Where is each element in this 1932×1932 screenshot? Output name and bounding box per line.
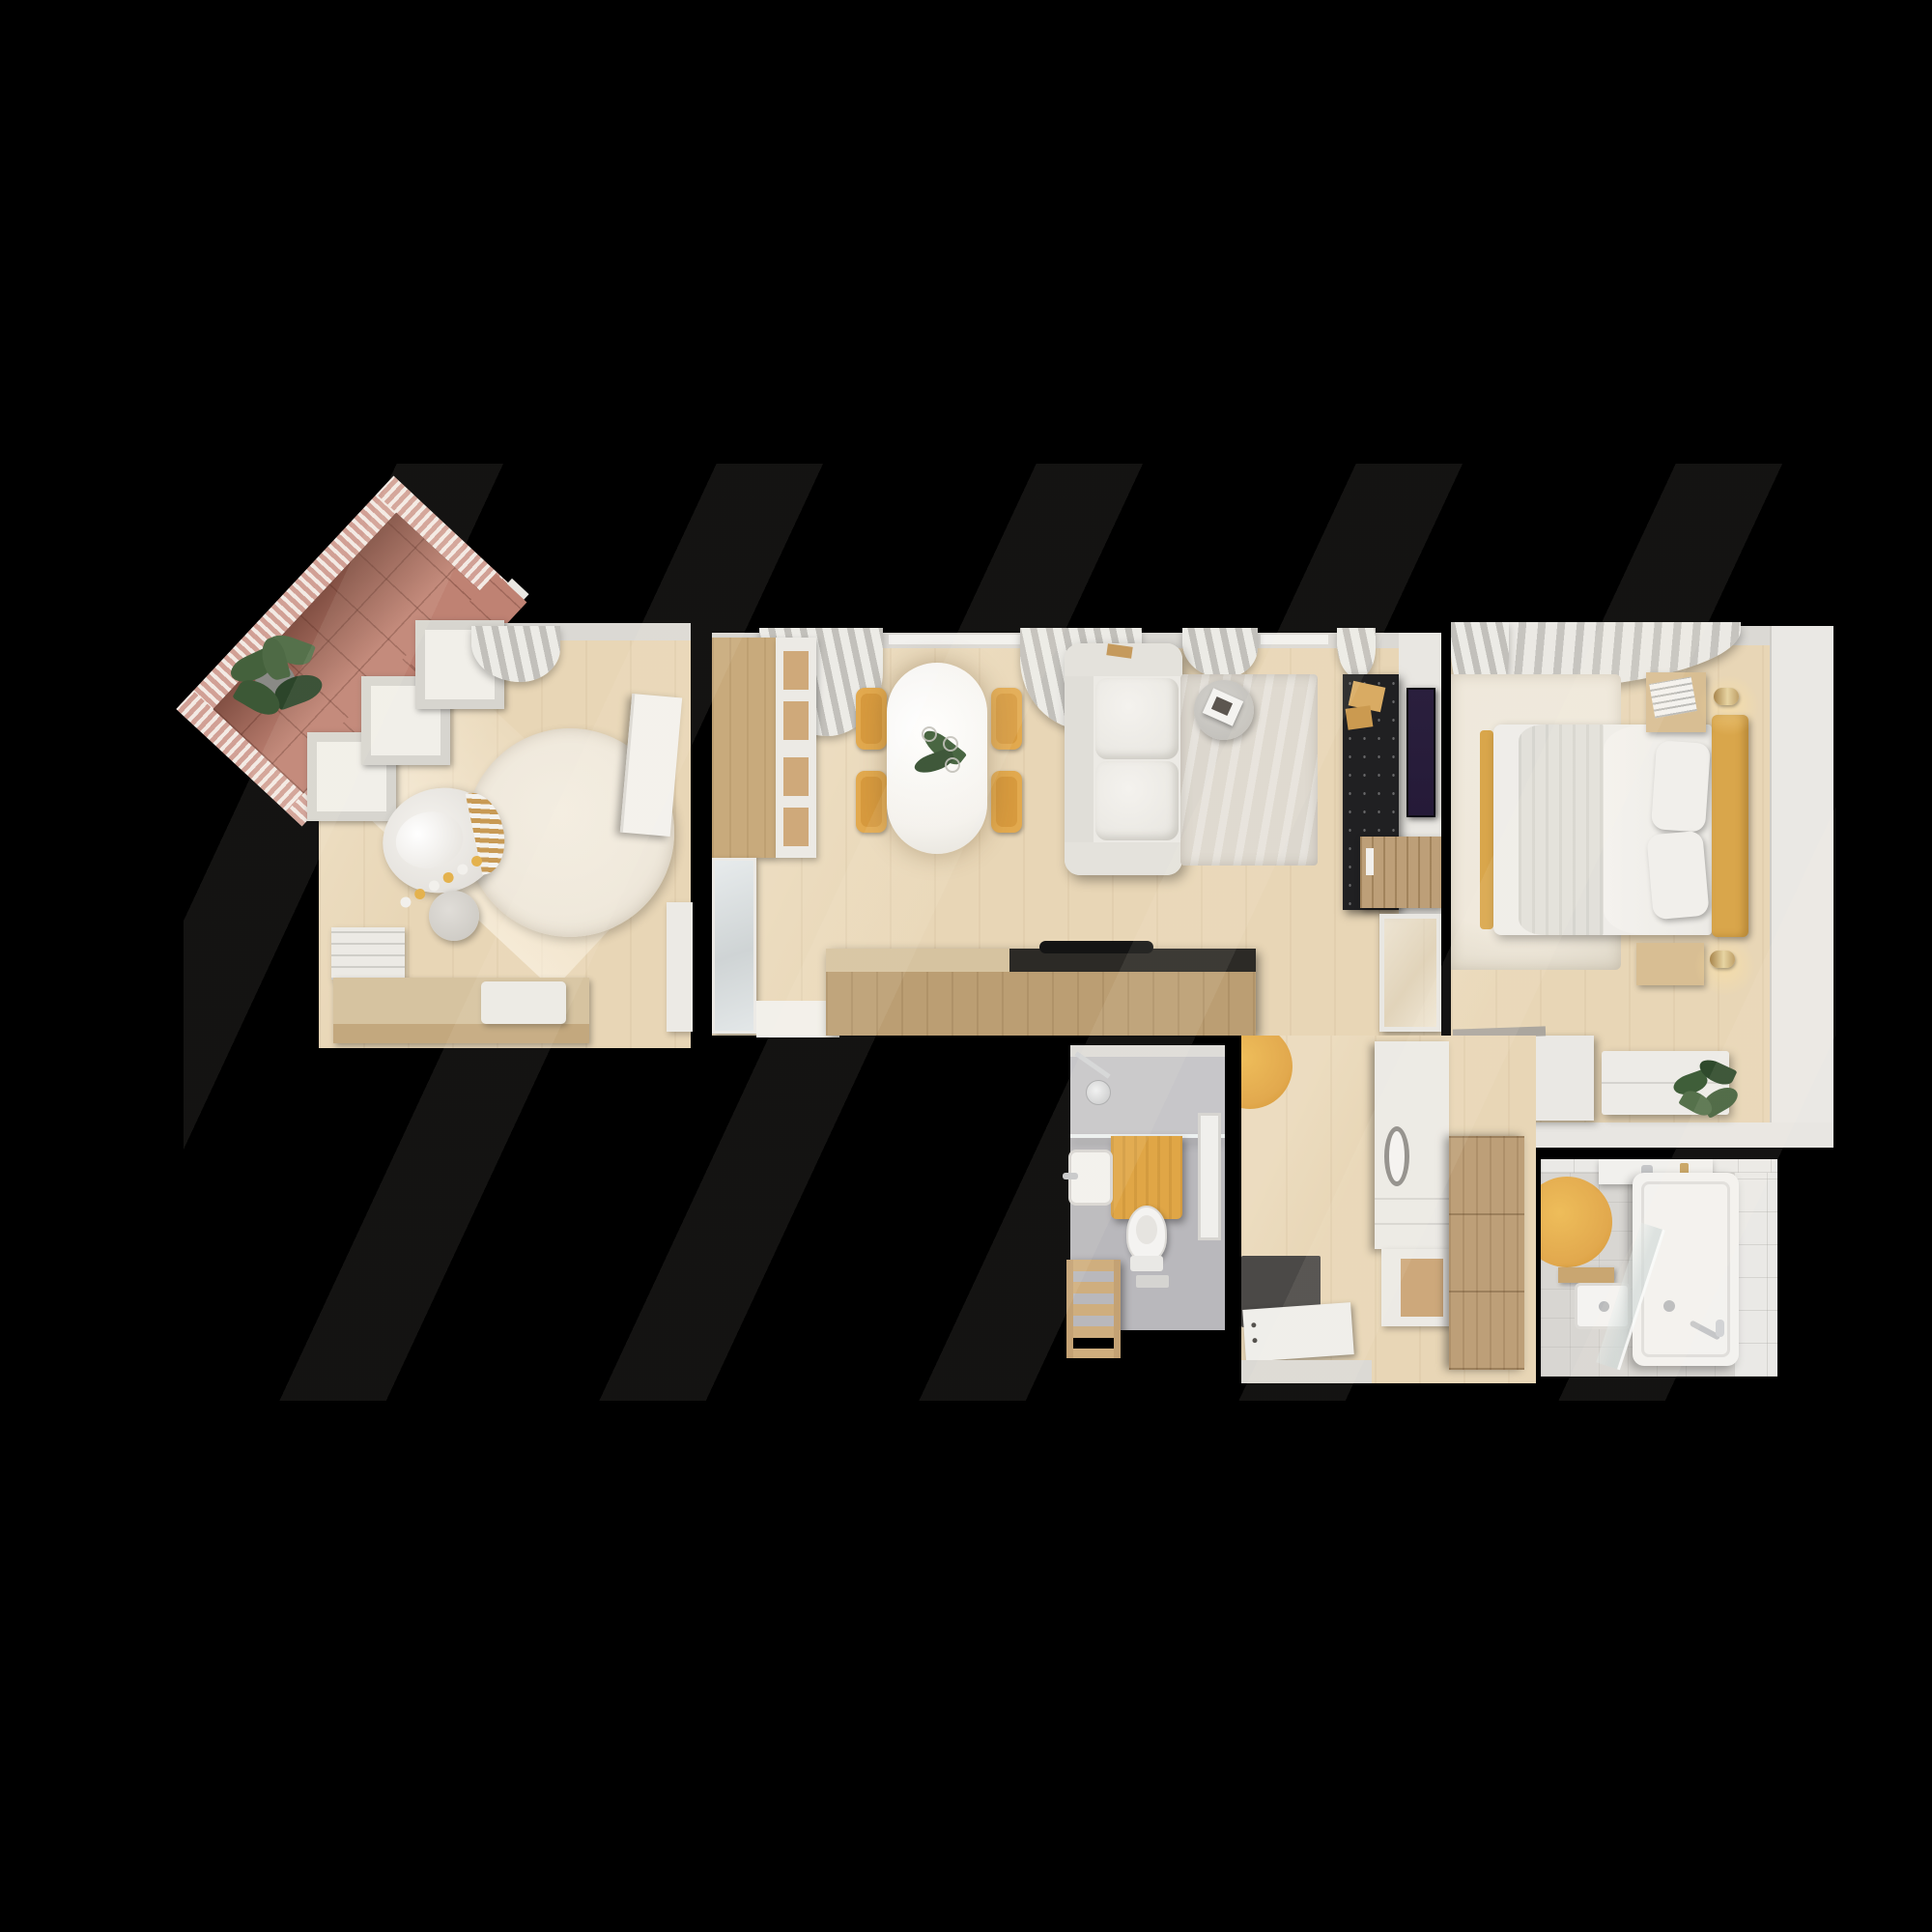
wall-tv (1406, 688, 1435, 817)
round-side-table (1194, 680, 1254, 740)
magazine (1649, 676, 1697, 718)
wood-bench (1558, 1267, 1614, 1283)
sofa-backrest (1065, 643, 1094, 875)
glazed-door (1379, 914, 1441, 1032)
cabinet-seam (1375, 1223, 1449, 1225)
nursery-wardrobe (667, 902, 693, 1032)
floor-plan-stage (0, 0, 1932, 1932)
sideboard-vase (1366, 848, 1374, 875)
bedroom-right-wall (1770, 626, 1833, 1122)
bed-folded-blanket (1519, 724, 1604, 935)
changing-pad (481, 981, 566, 1024)
living-window-sill (889, 635, 1029, 644)
table-glassware (945, 757, 960, 773)
dresser-front (333, 1024, 589, 1043)
dining-chair (856, 771, 887, 833)
leaning-mirror (1198, 1113, 1221, 1240)
nursery-pouf (429, 891, 479, 941)
door-handle (1251, 1322, 1256, 1327)
wc-basin-faucet (1063, 1173, 1078, 1179)
kitchen-tall-cabinet (712, 638, 776, 858)
door-lock (1252, 1338, 1257, 1343)
hall-wood-wardrobe (1449, 1136, 1524, 1370)
washer-column (1375, 1041, 1449, 1249)
bed-foot-rail (1480, 730, 1493, 929)
bathroom-wall-tiles (1734, 1159, 1777, 1377)
door-threshold (1241, 1360, 1372, 1383)
hob-handle (1039, 941, 1153, 953)
wall-sconce-bottom (1710, 951, 1735, 968)
dining-chair (991, 771, 1022, 833)
balcony-plant (230, 638, 322, 726)
shelf-cubby (783, 757, 809, 796)
shelf-cubby (783, 701, 809, 740)
bedroom-plant (1673, 1061, 1741, 1121)
wc-top-wall (1070, 1045, 1225, 1057)
tub-faucet (1663, 1300, 1675, 1312)
open-wood-niche (1401, 1259, 1443, 1317)
dining-table (887, 663, 987, 854)
console-wood-box (1346, 705, 1374, 729)
folded-blankets (331, 927, 405, 980)
hallway-yellow-rug (1241, 1036, 1293, 1109)
shelf-cubby (783, 651, 809, 690)
kitchen-island (826, 949, 1256, 1036)
double-bed (1480, 723, 1752, 937)
shelf-cubby (783, 808, 809, 846)
nightstand-top (1646, 672, 1706, 732)
hand-shower-head (1716, 1320, 1724, 1337)
bathroom-main-floor (1541, 1159, 1777, 1377)
living-window-sill (1261, 635, 1328, 644)
sofa (1065, 643, 1182, 875)
floor-drain (1136, 1275, 1169, 1288)
slatted-sideboard (1360, 837, 1441, 908)
dining-chair (991, 688, 1022, 750)
table-glassware (943, 736, 958, 752)
bed-pillow (1651, 740, 1711, 833)
bed-headboard (1712, 715, 1748, 937)
basin-faucet (1599, 1301, 1609, 1312)
toilet-bowl (1126, 1206, 1167, 1262)
toilet-seat (1136, 1215, 1157, 1244)
hallway-floor (1241, 1036, 1536, 1383)
bed-pillow (1646, 831, 1709, 921)
table-glassware (922, 726, 937, 742)
sconce-glow (1698, 674, 1760, 736)
cabinet-seam (1375, 1198, 1449, 1200)
nursery-dresser (333, 978, 589, 1043)
dining-chair (856, 688, 887, 750)
sofa-cushion (1095, 678, 1179, 759)
washer-door (1384, 1126, 1409, 1186)
kitchen-glass-cabinet (712, 858, 756, 1034)
shower-head (1086, 1080, 1111, 1105)
sofa-cushion (1095, 761, 1179, 840)
kitchen-shelf-unit (776, 638, 816, 858)
front-door (1242, 1302, 1353, 1362)
ladder-shelf (1066, 1260, 1121, 1358)
bathroom-yellow-rug (1541, 1177, 1612, 1267)
hall-cabinet (1381, 1249, 1449, 1326)
wall-sconce-top (1714, 688, 1739, 705)
sofa-armrest (1065, 842, 1182, 875)
toilet-cistern (1130, 1256, 1163, 1271)
